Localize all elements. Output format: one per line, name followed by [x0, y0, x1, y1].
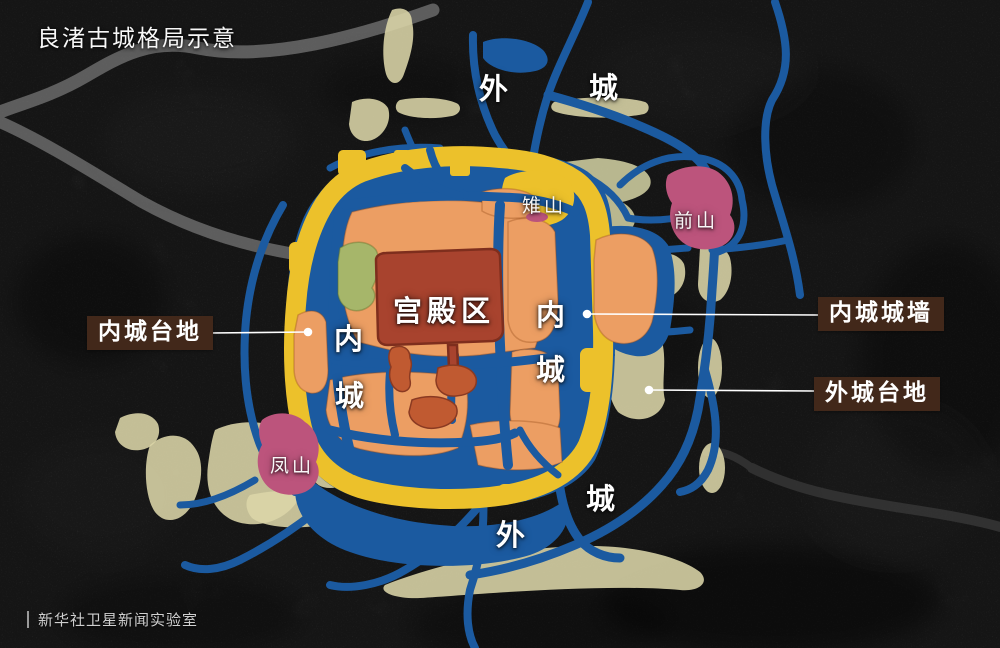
inner-city-label-right-cheng: 城 — [536, 347, 565, 389]
outer-city-label-top-wai: 外 — [479, 66, 508, 108]
callout-inner-platform: 内城台地 — [87, 316, 213, 350]
attribution: 新华社卫星新闻实验室 — [27, 609, 198, 630]
outer-city-label-top-cheng: 城 — [589, 65, 618, 107]
qianshan-label: 前山 — [674, 206, 718, 233]
green-area-shape — [338, 242, 379, 310]
fengshan-label: 凤山 — [270, 451, 314, 478]
palace-area-label: 宫殿区 — [393, 288, 495, 330]
inner-city-label-left-nei: 内 — [334, 316, 363, 358]
zhishan-label: 雉山 — [522, 191, 566, 218]
outer-city-label-bottom-cheng: 城 — [586, 476, 615, 518]
platform-west — [294, 311, 328, 393]
attribution-divider — [27, 611, 29, 628]
callout-outer-platform: 外城台地 — [814, 377, 940, 411]
inner-city-label-left-cheng: 城 — [335, 373, 364, 415]
outer-city-label-bottom-wai: 外 — [496, 512, 525, 554]
liangzhu-map: 良渚古城格局示意 外 城 外 城 内 城 内 城 宫殿区 雉山 前山 凤山 内城… — [0, 0, 1000, 648]
callout-inner-wall: 内城城墙 — [818, 297, 944, 331]
platform-east-outside — [594, 234, 657, 344]
attribution-text: 新华社卫星新闻实验室 — [38, 609, 198, 630]
map-title: 良渚古城格局示意 — [37, 19, 237, 53]
inner-city-label-right-nei: 内 — [536, 292, 565, 334]
